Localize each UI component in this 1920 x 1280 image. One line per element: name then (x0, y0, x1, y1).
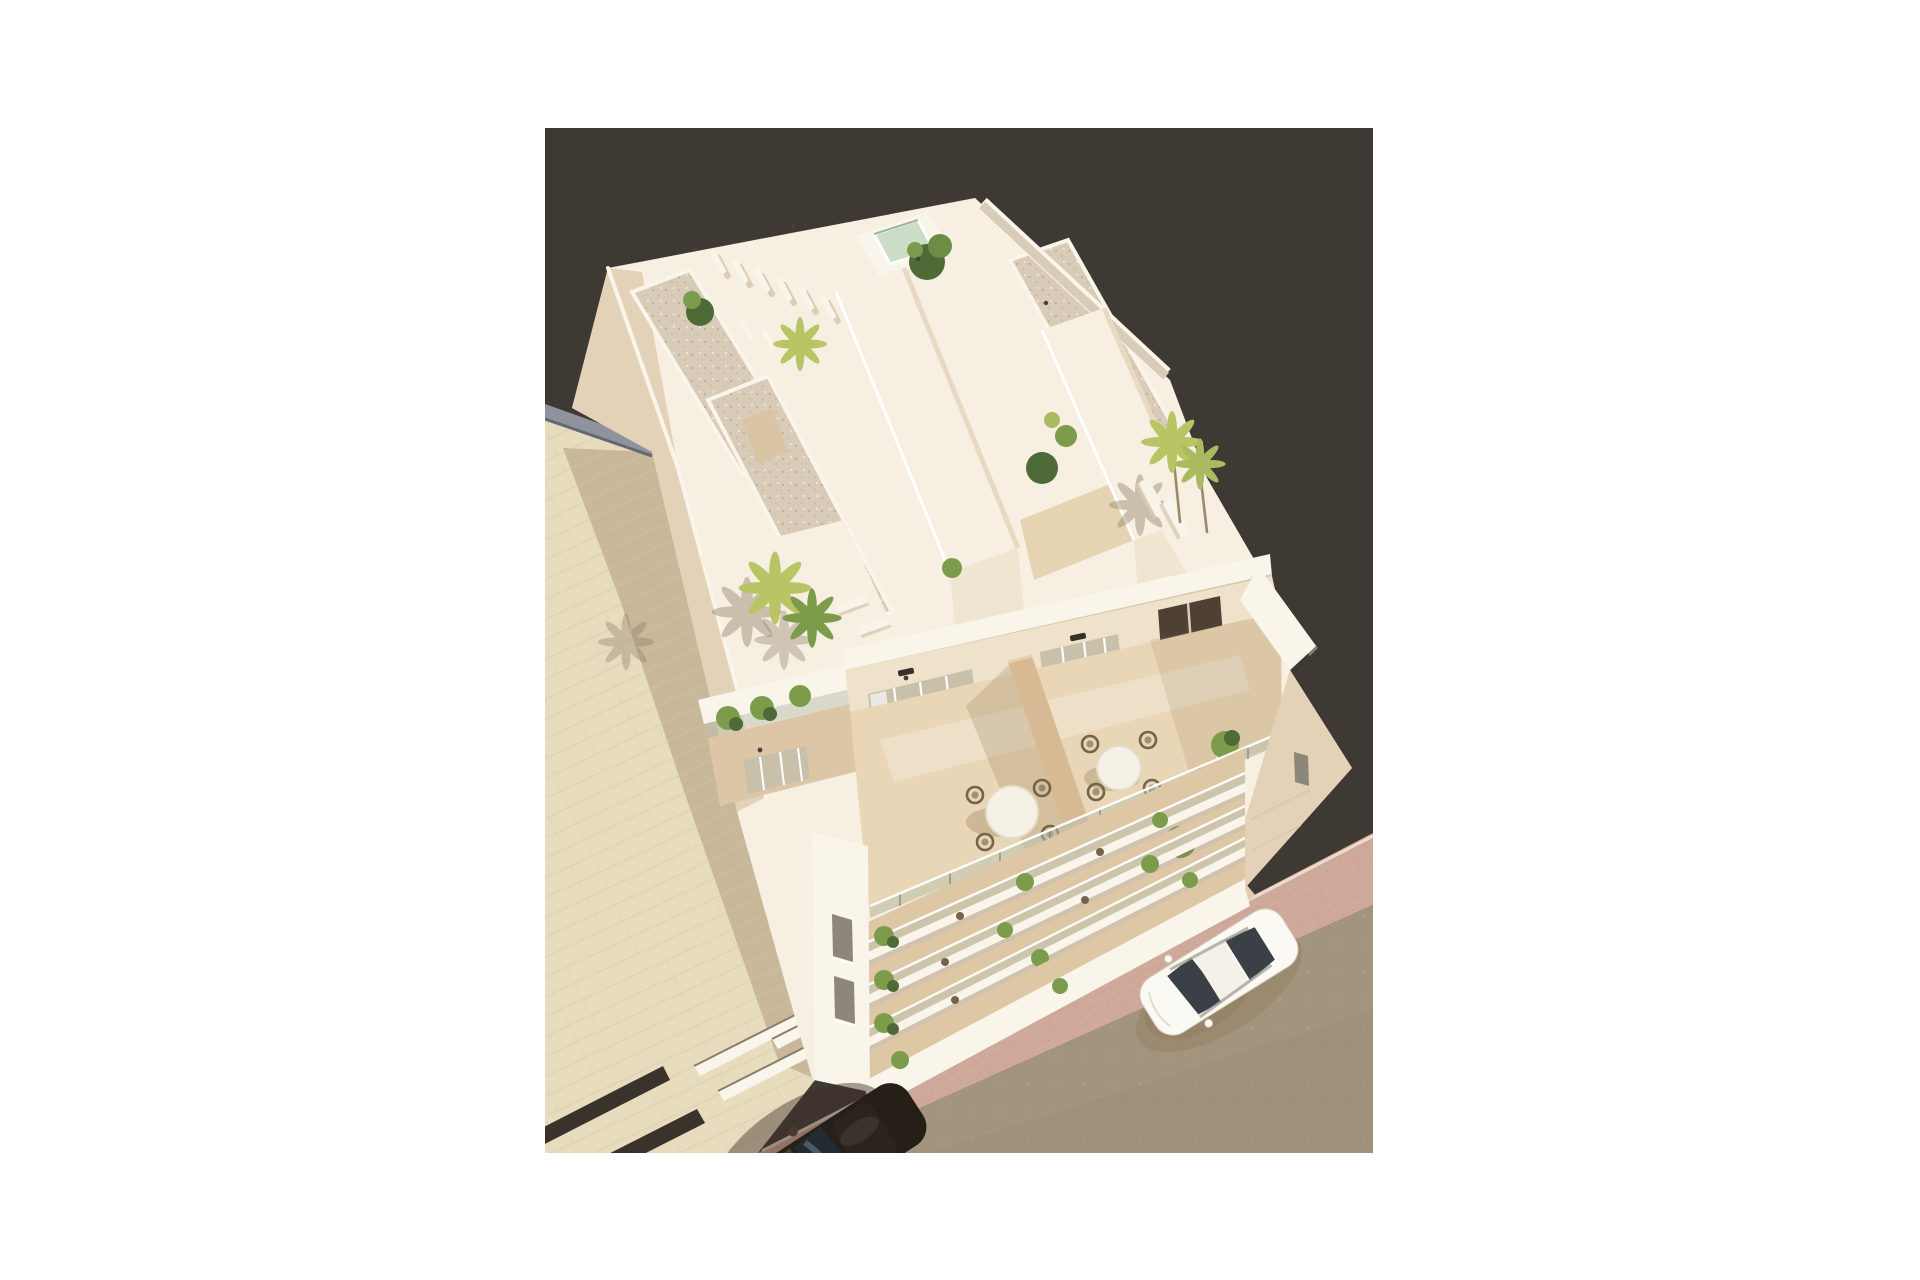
palm-tree (1174, 438, 1225, 489)
round-table (986, 786, 1038, 838)
architectural-render-photo (0, 0, 1920, 1280)
palm-tree (782, 588, 841, 647)
render-canvas (0, 0, 1920, 1280)
corner-column (812, 832, 870, 1092)
palm-shadow (598, 614, 655, 671)
round-table (1097, 746, 1141, 790)
